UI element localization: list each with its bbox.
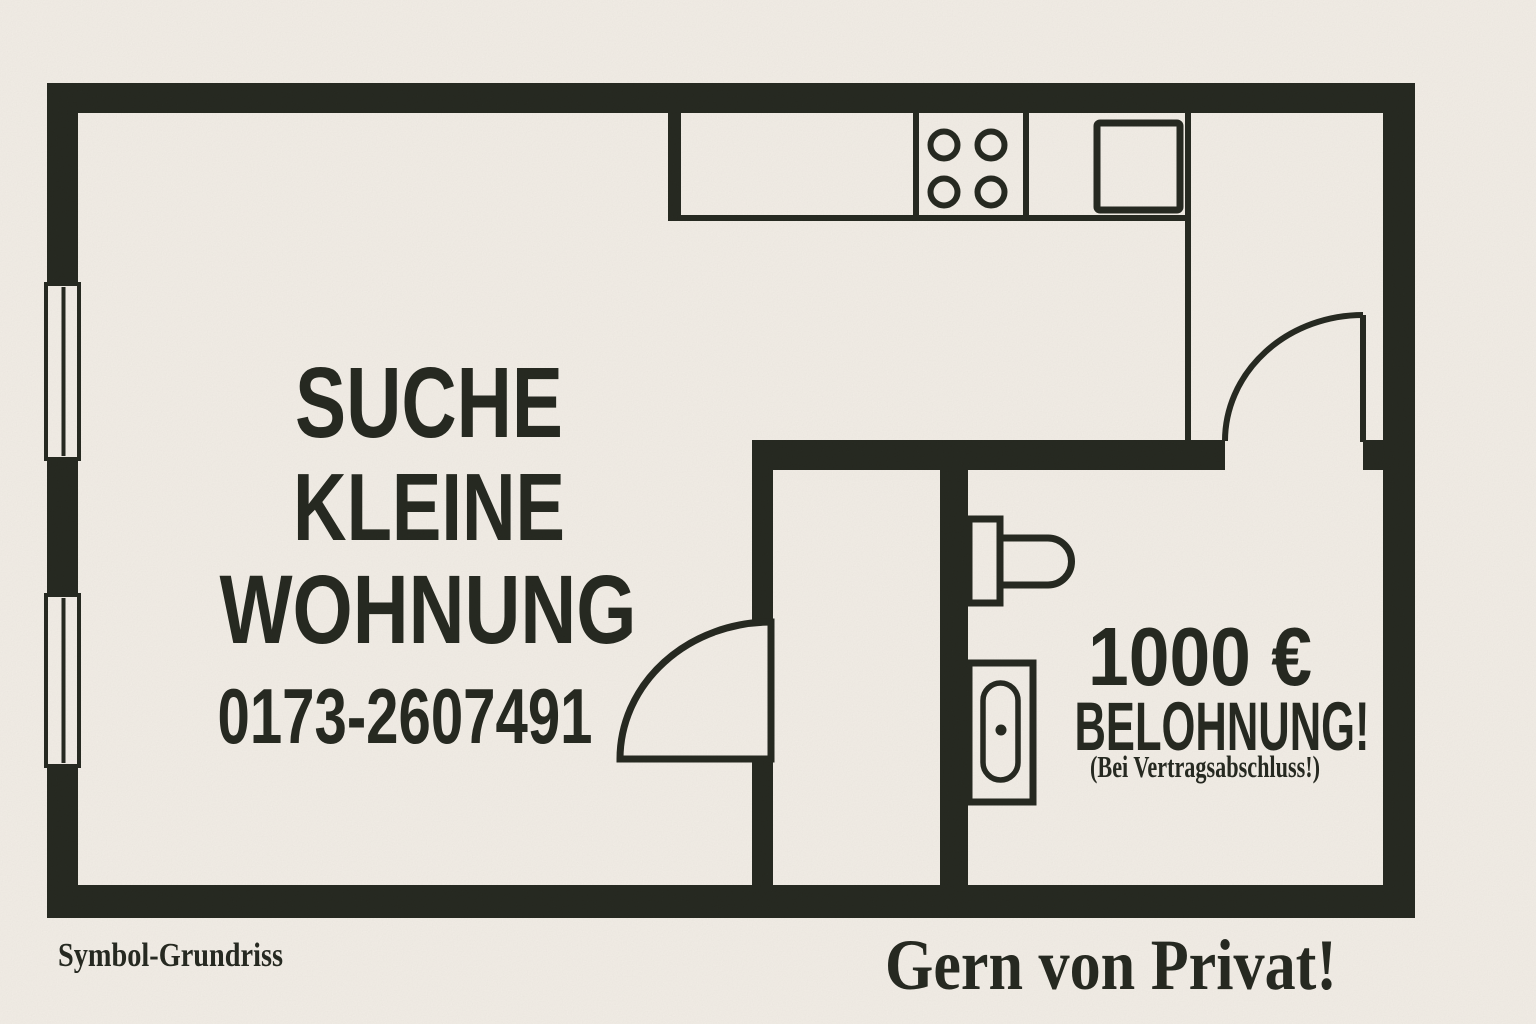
apartment-wanted-poster: SUCHE KLEINE WOHNUNG 0173-2607491 1000 €…: [0, 0, 1536, 1024]
paper-grain-overlay: [0, 0, 1536, 1024]
floor-plan-graphic: SUCHE KLEINE WOHNUNG 0173-2607491 1000 €…: [0, 0, 1536, 1024]
